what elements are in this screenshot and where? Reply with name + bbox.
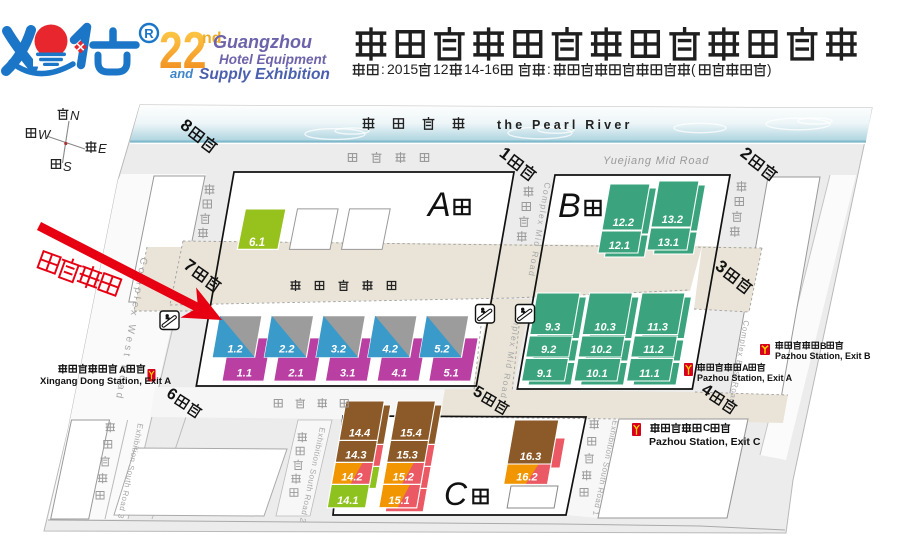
svg-text:Guangzhou: Guangzhou xyxy=(213,32,312,52)
svg-text:Pazhou Station, Exit B: Pazhou Station, Exit B xyxy=(775,351,871,361)
svg-text:C: C xyxy=(703,423,710,434)
svg-text:6.1: 6.1 xyxy=(249,237,265,249)
svg-text:9.1: 9.1 xyxy=(537,368,552,380)
svg-text:4.1: 4.1 xyxy=(391,368,407,380)
svg-text:11.1: 11.1 xyxy=(639,368,660,380)
svg-text:16.3: 16.3 xyxy=(520,451,541,463)
svg-text:14.3: 14.3 xyxy=(345,449,366,461)
svg-text:(: ( xyxy=(691,62,696,77)
svg-text:2015: 2015 xyxy=(387,61,418,77)
svg-text:W: W xyxy=(38,127,52,142)
svg-text:3.1: 3.1 xyxy=(340,368,355,380)
svg-text:Supply Exhibition: Supply Exhibition xyxy=(199,66,330,83)
svg-text:2.1: 2.1 xyxy=(287,368,303,380)
svg-text:5.2: 5.2 xyxy=(434,344,449,356)
svg-text:14.2: 14.2 xyxy=(341,471,362,483)
svg-text:14.1: 14.1 xyxy=(337,495,358,507)
svg-text:Pazhou Station, Exit A: Pazhou Station, Exit A xyxy=(697,373,793,383)
svg-text:14.4: 14.4 xyxy=(349,427,370,439)
svg-text:Pazhou Station, Exit C: Pazhou Station, Exit C xyxy=(649,436,761,448)
svg-text:11.3: 11.3 xyxy=(647,322,668,334)
svg-text:1.2: 1.2 xyxy=(227,344,242,356)
svg-text:12.2: 12.2 xyxy=(613,217,634,229)
svg-text:15.4: 15.4 xyxy=(400,427,421,439)
svg-text:A: A xyxy=(742,363,749,373)
svg-text:A: A xyxy=(119,365,126,376)
svg-text:15.3: 15.3 xyxy=(396,449,417,461)
svg-text:Hotel Equipment: Hotel Equipment xyxy=(219,52,327,67)
svg-text:10.2: 10.2 xyxy=(590,344,611,356)
svg-text:C: C xyxy=(444,476,468,512)
svg-text:5.1: 5.1 xyxy=(443,368,458,380)
svg-text:12.1: 12.1 xyxy=(609,240,630,252)
svg-text:A: A xyxy=(426,186,451,224)
svg-text:9.2: 9.2 xyxy=(541,344,556,356)
svg-text::: : xyxy=(547,62,551,77)
svg-text:1.1: 1.1 xyxy=(237,368,252,380)
svg-text:B: B xyxy=(558,187,581,225)
svg-text:16.2: 16.2 xyxy=(516,471,537,483)
svg-text:11.2: 11.2 xyxy=(643,344,664,356)
svg-text:10.1: 10.1 xyxy=(586,368,607,380)
svg-text:9.3: 9.3 xyxy=(545,322,560,334)
svg-text:4.2: 4.2 xyxy=(382,344,398,356)
svg-text:S: S xyxy=(63,159,72,174)
svg-text:Yuejiang Mid Road: Yuejiang Mid Road xyxy=(603,155,709,167)
svg-text:B: B xyxy=(820,341,827,351)
svg-text:14-16: 14-16 xyxy=(464,61,500,77)
svg-text:12: 12 xyxy=(433,61,449,77)
svg-text:the Pearl River: the Pearl River xyxy=(497,118,633,132)
svg-text:10.3: 10.3 xyxy=(594,322,615,334)
svg-text:R: R xyxy=(144,26,154,41)
svg-text:15.1: 15.1 xyxy=(388,495,409,507)
svg-text:13.1: 13.1 xyxy=(658,237,679,249)
svg-text:E: E xyxy=(98,141,107,156)
svg-text:N: N xyxy=(70,108,80,123)
svg-text:3.2: 3.2 xyxy=(331,344,346,356)
svg-text:): ) xyxy=(767,62,772,77)
svg-text:15.2: 15.2 xyxy=(392,471,413,483)
svg-text:and: and xyxy=(170,66,194,81)
svg-text:2.2: 2.2 xyxy=(278,344,294,356)
svg-text::: : xyxy=(381,62,385,77)
svg-text:13.2: 13.2 xyxy=(662,214,683,226)
svg-text:Xingang Dong Station, Exit A: Xingang Dong Station, Exit A xyxy=(40,376,171,387)
